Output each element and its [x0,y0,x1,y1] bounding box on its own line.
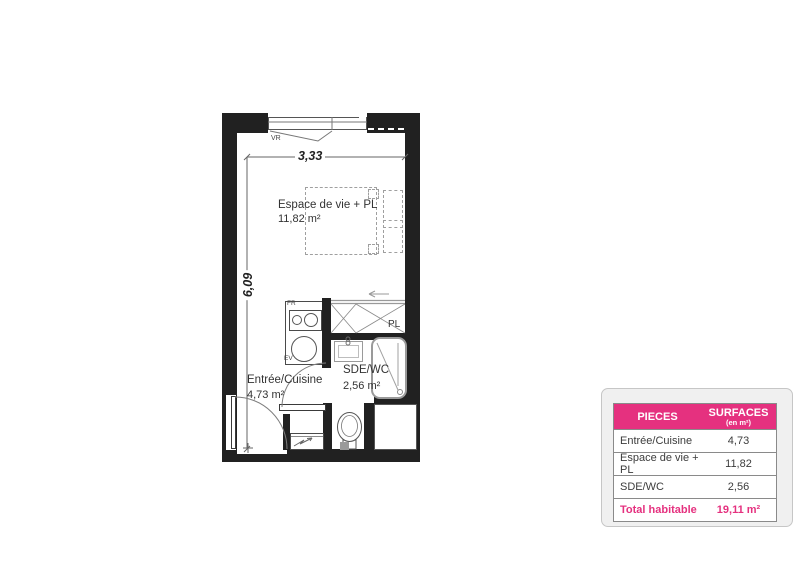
row-name: Espace de vie + PL [614,452,701,476]
page: { "plan": { "rooms": { "living": { "name… [0,0,800,566]
height-dimension: 6,09 [241,270,255,300]
header-surfaces: SURFACES (en m²) [701,407,776,427]
table-row: SDE/WC 2,56 [614,475,776,498]
shutter-label: VR [271,135,281,143]
washbasin-bowl [338,345,359,358]
row-value: 2,56 [701,481,776,493]
total-value: 19,11 m² [701,504,776,516]
table-row: Entrée/Cuisine 4,73 [614,429,776,452]
header-pieces: PIECES [614,411,701,423]
table-total-row: Total habitable 19,11 m² [614,498,776,521]
header-surfaces-title: SURFACES [709,407,769,419]
sink-label: EV [284,355,293,362]
closet-label: PL [388,319,400,331]
row-value: 11,82 [701,458,776,470]
fridge-label: FR [287,300,296,307]
living-room-label: Espace de vie + PL [278,199,377,212]
row-value: 4,73 [701,435,776,447]
entrance-threshold [237,449,287,454]
bathroom-door-leaf [279,404,326,411]
bathroom-area: 2,56 m² [343,380,380,393]
wall-shaft-left [364,403,374,450]
bed-pillow-bottom [368,244,379,254]
header-surfaces-unit: (en m²) [701,418,776,427]
entrance-door-leaf [231,396,236,449]
wardrobe-divider-1 [383,220,403,221]
wall-electrical-left [283,414,290,450]
wall-opening-dashed-line [368,128,404,130]
electrical-panel-line [291,436,323,437]
entry-room-label: Entrée/Cuisine [247,374,322,387]
living-room-area: 11,82 m² [278,213,321,226]
row-name: Entrée/Cuisine [614,435,701,447]
wardrobe-divider-2 [383,227,403,228]
bed-pillow-top [368,189,379,199]
row-name: SDE/WC [614,481,701,493]
total-label: Total habitable [614,504,701,516]
width-dimension: 3,33 [295,149,325,163]
table-row: Espace de vie + PL 11,82 [614,452,776,475]
entry-room-area: 4,73 m² [247,389,284,402]
wall-kitchen-bathroom [322,298,331,368]
surface-table: PIECES SURFACES (en m²) Entrée/Cuisine 4… [613,403,777,522]
cooktop [289,310,322,331]
surface-table-header: PIECES SURFACES (en m²) [614,404,776,429]
window-frame [268,117,367,130]
window-end-cap [359,113,366,122]
technical-shaft [374,404,417,450]
bathroom-label: SDE/WC [343,364,389,377]
wardrobe-dashed [383,190,403,253]
